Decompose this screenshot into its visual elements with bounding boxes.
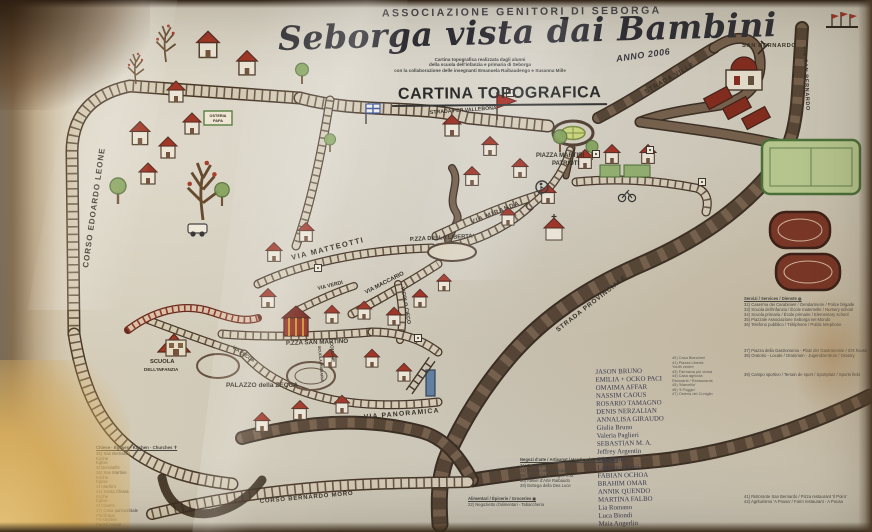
house-icon: [260, 289, 276, 308]
map-marker-icon: [315, 265, 322, 272]
map-marker-icon: [415, 335, 422, 342]
house-icon: [130, 122, 150, 145]
road-martiri-east: [640, 122, 778, 144]
legend-community: 37) Piazza della Gastronomia - Platz der…: [744, 348, 870, 358]
legend-churches-lines: 25) San Bernardo Kirche Église St Bernar…: [96, 451, 138, 527]
house-icon: [159, 137, 177, 158]
legend-right-mid-lines: 40) Casa Biancheri 41) Piazza Libertà Yo…: [672, 355, 713, 396]
legend-services: Servizi / Services / Dienste ◍ 32) Caser…: [744, 296, 870, 327]
tower-icon: [426, 370, 435, 396]
house-icon: [364, 349, 379, 367]
house-icon: [139, 163, 157, 184]
martiri-church-icon: [544, 214, 564, 240]
house-icon: [237, 51, 258, 75]
track-oval-1: [197, 354, 239, 378]
car-icon: [188, 224, 207, 237]
legend-sport: 39) Campo sportivo / Terrain de sport / …: [744, 372, 870, 377]
bicycle-icon: [618, 190, 635, 202]
house-icon: [437, 274, 451, 291]
house-icon: [412, 289, 427, 307]
house-icon: [464, 167, 480, 186]
legend-services-lines: 32) Caserma dei Carabinieri / Gendarmeri…: [744, 302, 854, 327]
house-icon: [396, 363, 411, 381]
map-marker-icon: [593, 151, 600, 158]
tree-icon: [553, 130, 567, 152]
street-connector-north: [296, 100, 330, 246]
bare-tree-icon: [128, 53, 144, 84]
street-martiri-row: [576, 180, 707, 212]
place-label-piazza-martiri-2: PATRIOTI: [552, 161, 579, 167]
house-icon: [292, 401, 308, 420]
map-type-heading: CARTINA TOPOGRAFICA: [392, 84, 607, 107]
map-marker-icon: [647, 147, 654, 154]
street-label-strada-ville: STRADA VILLE: [644, 61, 697, 95]
place-label-palazzo-zecca: PALAZZO della ZECCA: [226, 382, 298, 389]
tree-icon: [110, 178, 126, 204]
bare-tree-icon: [156, 25, 175, 62]
legend-services-title: Servizi / Services / Dienste ◍: [744, 296, 870, 301]
sports-field: [762, 140, 860, 194]
place-label-piazza-martiri-1: PIAZZA MARTIRI: [536, 153, 584, 159]
flags-emblem-icon: [826, 12, 858, 27]
house-icon: [266, 243, 282, 262]
legend-sport-lines: 39) Campo sportivo / Terrain de sport / …: [744, 372, 860, 377]
place-label-scuola-2: DELL'INFANZIA: [144, 367, 179, 372]
shops-strip: [600, 165, 650, 177]
place-label-scuola-1: SCUOLA: [150, 359, 175, 365]
legend-food-lines: 22) Negozietto d'alimentari - Tabaccheri…: [468, 502, 544, 507]
legend-community-lines: 37) Piazza della Gastronomia - Platz der…: [744, 348, 867, 358]
tree-icon: [215, 183, 229, 206]
legend-restaurants: 41) Ristorante San Bernardo / Pizza rest…: [744, 494, 870, 504]
legend-right-mid: 40) Casa Biancheri 41) Piazza Libertà Yo…: [672, 356, 742, 397]
place-label-scuola-primaria: SCUOLA PRIMARIA: [317, 346, 324, 382]
road-red-zigzag: [128, 308, 258, 330]
osteria-sign-line1: OSTERIA: [210, 114, 227, 118]
tree-icon: [324, 134, 335, 152]
bare-tree-icon: [187, 161, 218, 220]
house-icon: [183, 113, 201, 134]
osteria-sign-line2: PAPA: [213, 119, 223, 123]
house-icon: [512, 159, 528, 178]
street-label-corso-edoardo-leone: CORSO EDOARDO LEONE: [81, 147, 107, 268]
house-icon: [324, 305, 339, 323]
framed-map-photo: OSTERIA PAPA CORSO EDOARDO LEONE STRADA …: [0, 0, 872, 532]
legend-food: Alimentari / Épicerie / Groceries ◼ 22) …: [468, 497, 618, 508]
map-marker-icon: [699, 179, 706, 186]
house-icon: [254, 413, 270, 432]
street-san-martino-2: [372, 332, 438, 352]
bocce-court-2: [776, 254, 840, 290]
pupil-signatures: JASON BRUNO EMILIA + OCKO PACI OMAIMA AF…: [595, 367, 676, 529]
credits-text: Cartina topografica realizzata dagli alu…: [390, 57, 570, 73]
piazza-liberta-plaza: [428, 243, 476, 261]
legend-crafts-lines: 31) Formagetta 23) Tessuto della Bandier…: [520, 463, 575, 488]
street-label-via-panoramica: VIA PANORAMICA: [364, 407, 440, 421]
house-icon: [197, 31, 220, 57]
legend-restaurants-lines: 41) Ristorante San Bernardo / Pizza rest…: [744, 494, 847, 504]
bocce-court-1: [770, 212, 830, 248]
house-icon: [482, 137, 498, 156]
osteria-sign: OSTERIA PAPA: [204, 111, 232, 125]
legend-churches: Chiese · Églises · Kirchen · Churches ✝ …: [96, 446, 208, 528]
house-icon: [604, 145, 620, 164]
tree-icon: [296, 63, 309, 84]
